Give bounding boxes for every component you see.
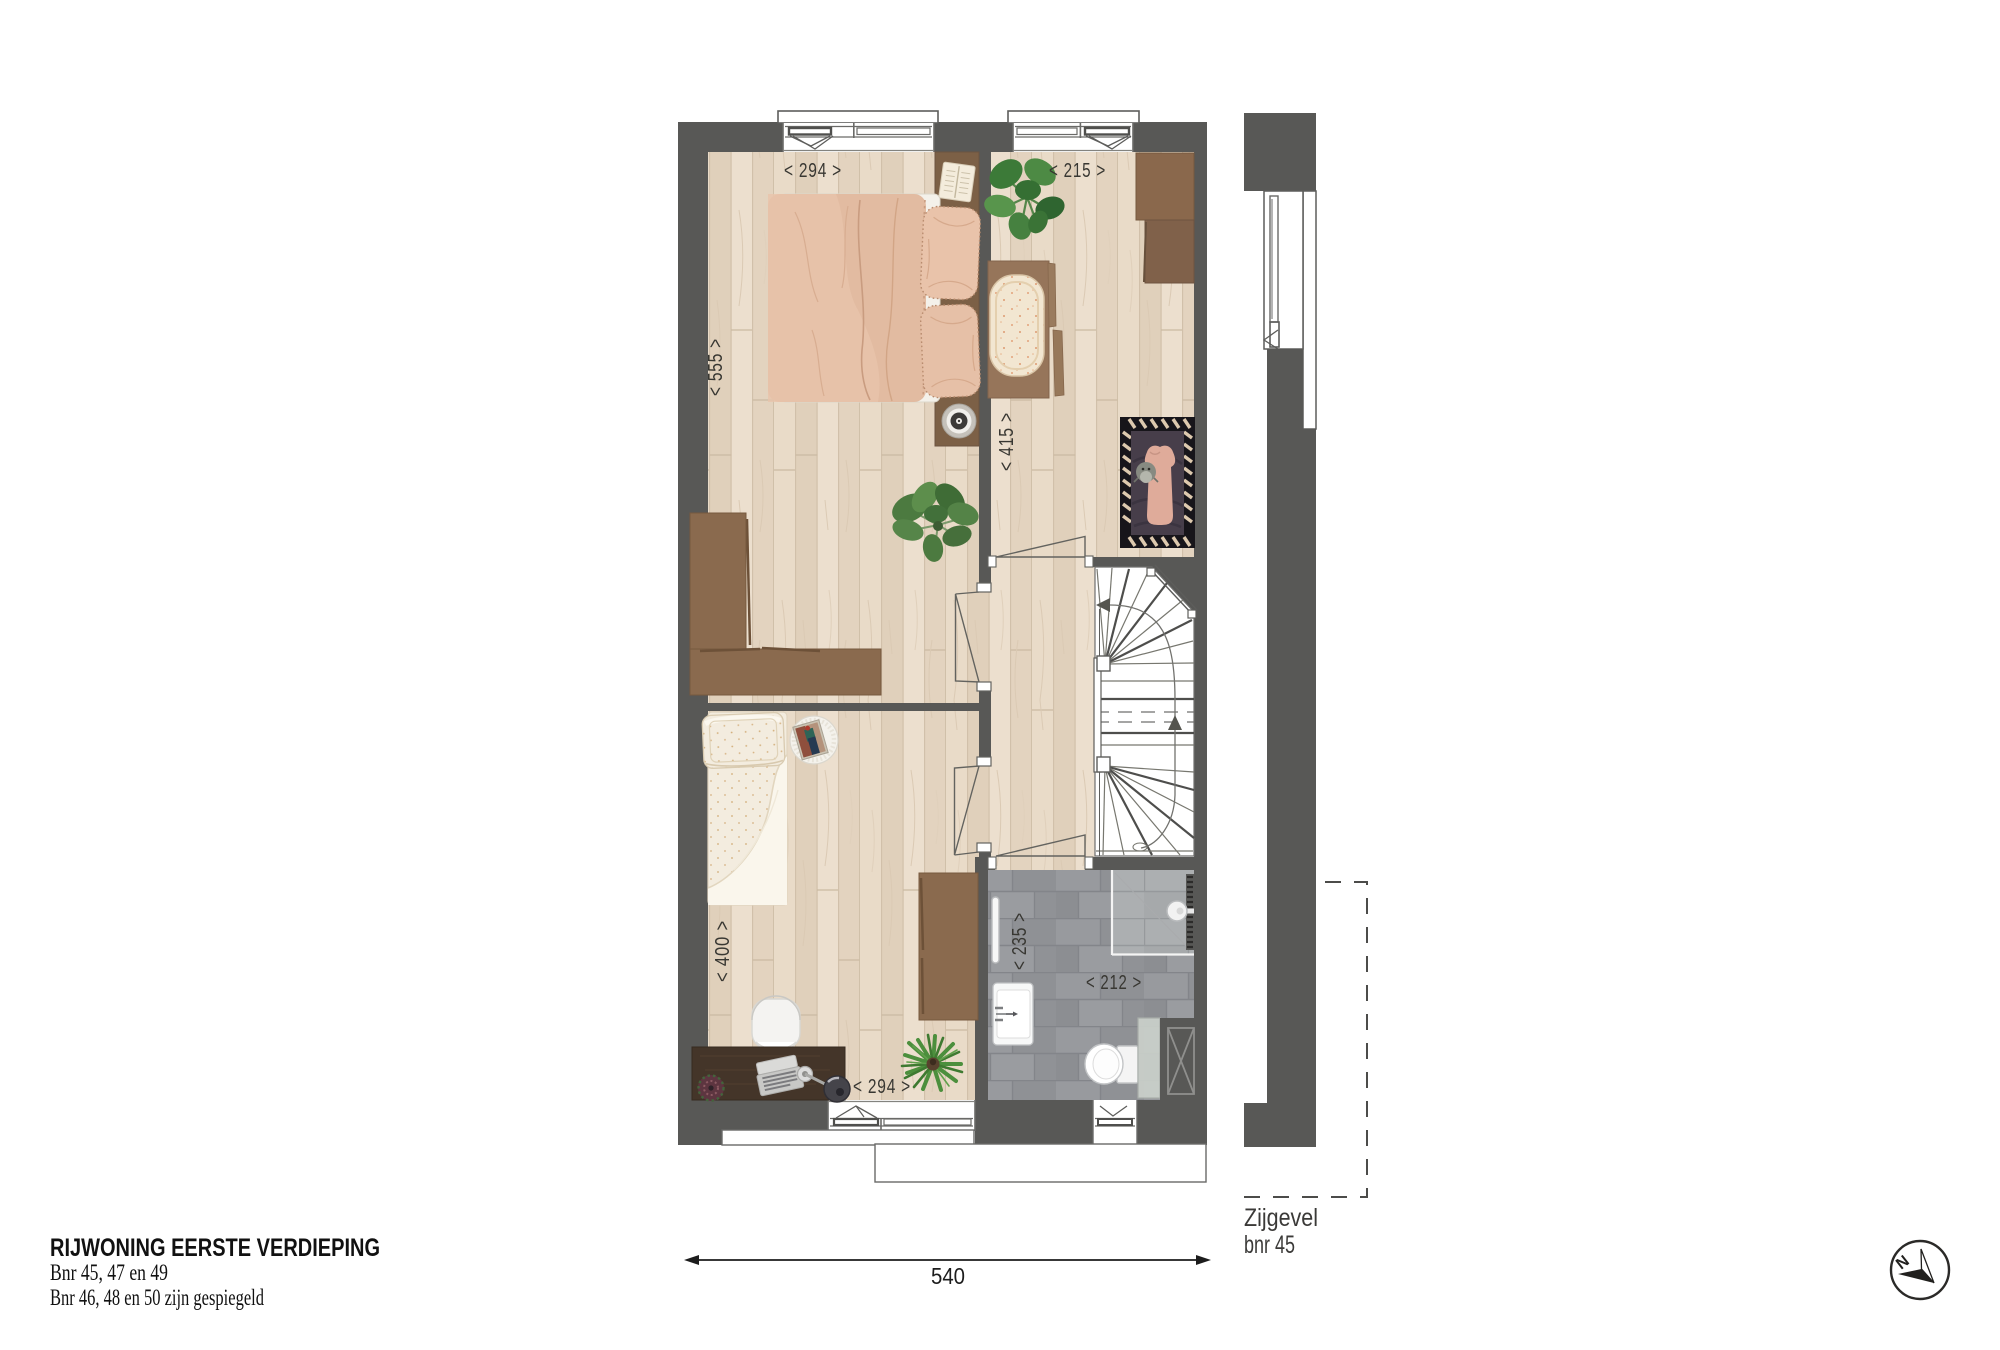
svg-text:< 215 >: < 215 > — [1049, 160, 1106, 182]
svg-text:< 555 >: < 555 > — [705, 338, 727, 396]
svg-text:< 415 >: < 415 > — [996, 412, 1018, 471]
svg-text:< 294 >: < 294 > — [784, 160, 842, 182]
svg-text:RIJWONING EERSTE VERDIEPING: RIJWONING EERSTE VERDIEPING — [50, 1234, 380, 1262]
svg-text:< 294 >: < 294 > — [853, 1076, 911, 1098]
svg-text:< 235 >: < 235 > — [1009, 912, 1031, 970]
svg-text:< 400 >: < 400 > — [712, 920, 734, 982]
svg-text:540: 540 — [931, 1263, 965, 1289]
svg-text:Bnr 46, 48 en 50 zijn gespiege: Bnr 46, 48 en 50 zijn gespiegeld — [50, 1285, 264, 1310]
svg-text:bnr 45: bnr 45 — [1244, 1231, 1295, 1259]
svg-text:Bnr 45, 47 en 49: Bnr 45, 47 en 49 — [50, 1260, 168, 1285]
svg-text:< 212 >: < 212 > — [1086, 972, 1142, 994]
svg-text:Zijgevel: Zijgevel — [1244, 1204, 1318, 1232]
